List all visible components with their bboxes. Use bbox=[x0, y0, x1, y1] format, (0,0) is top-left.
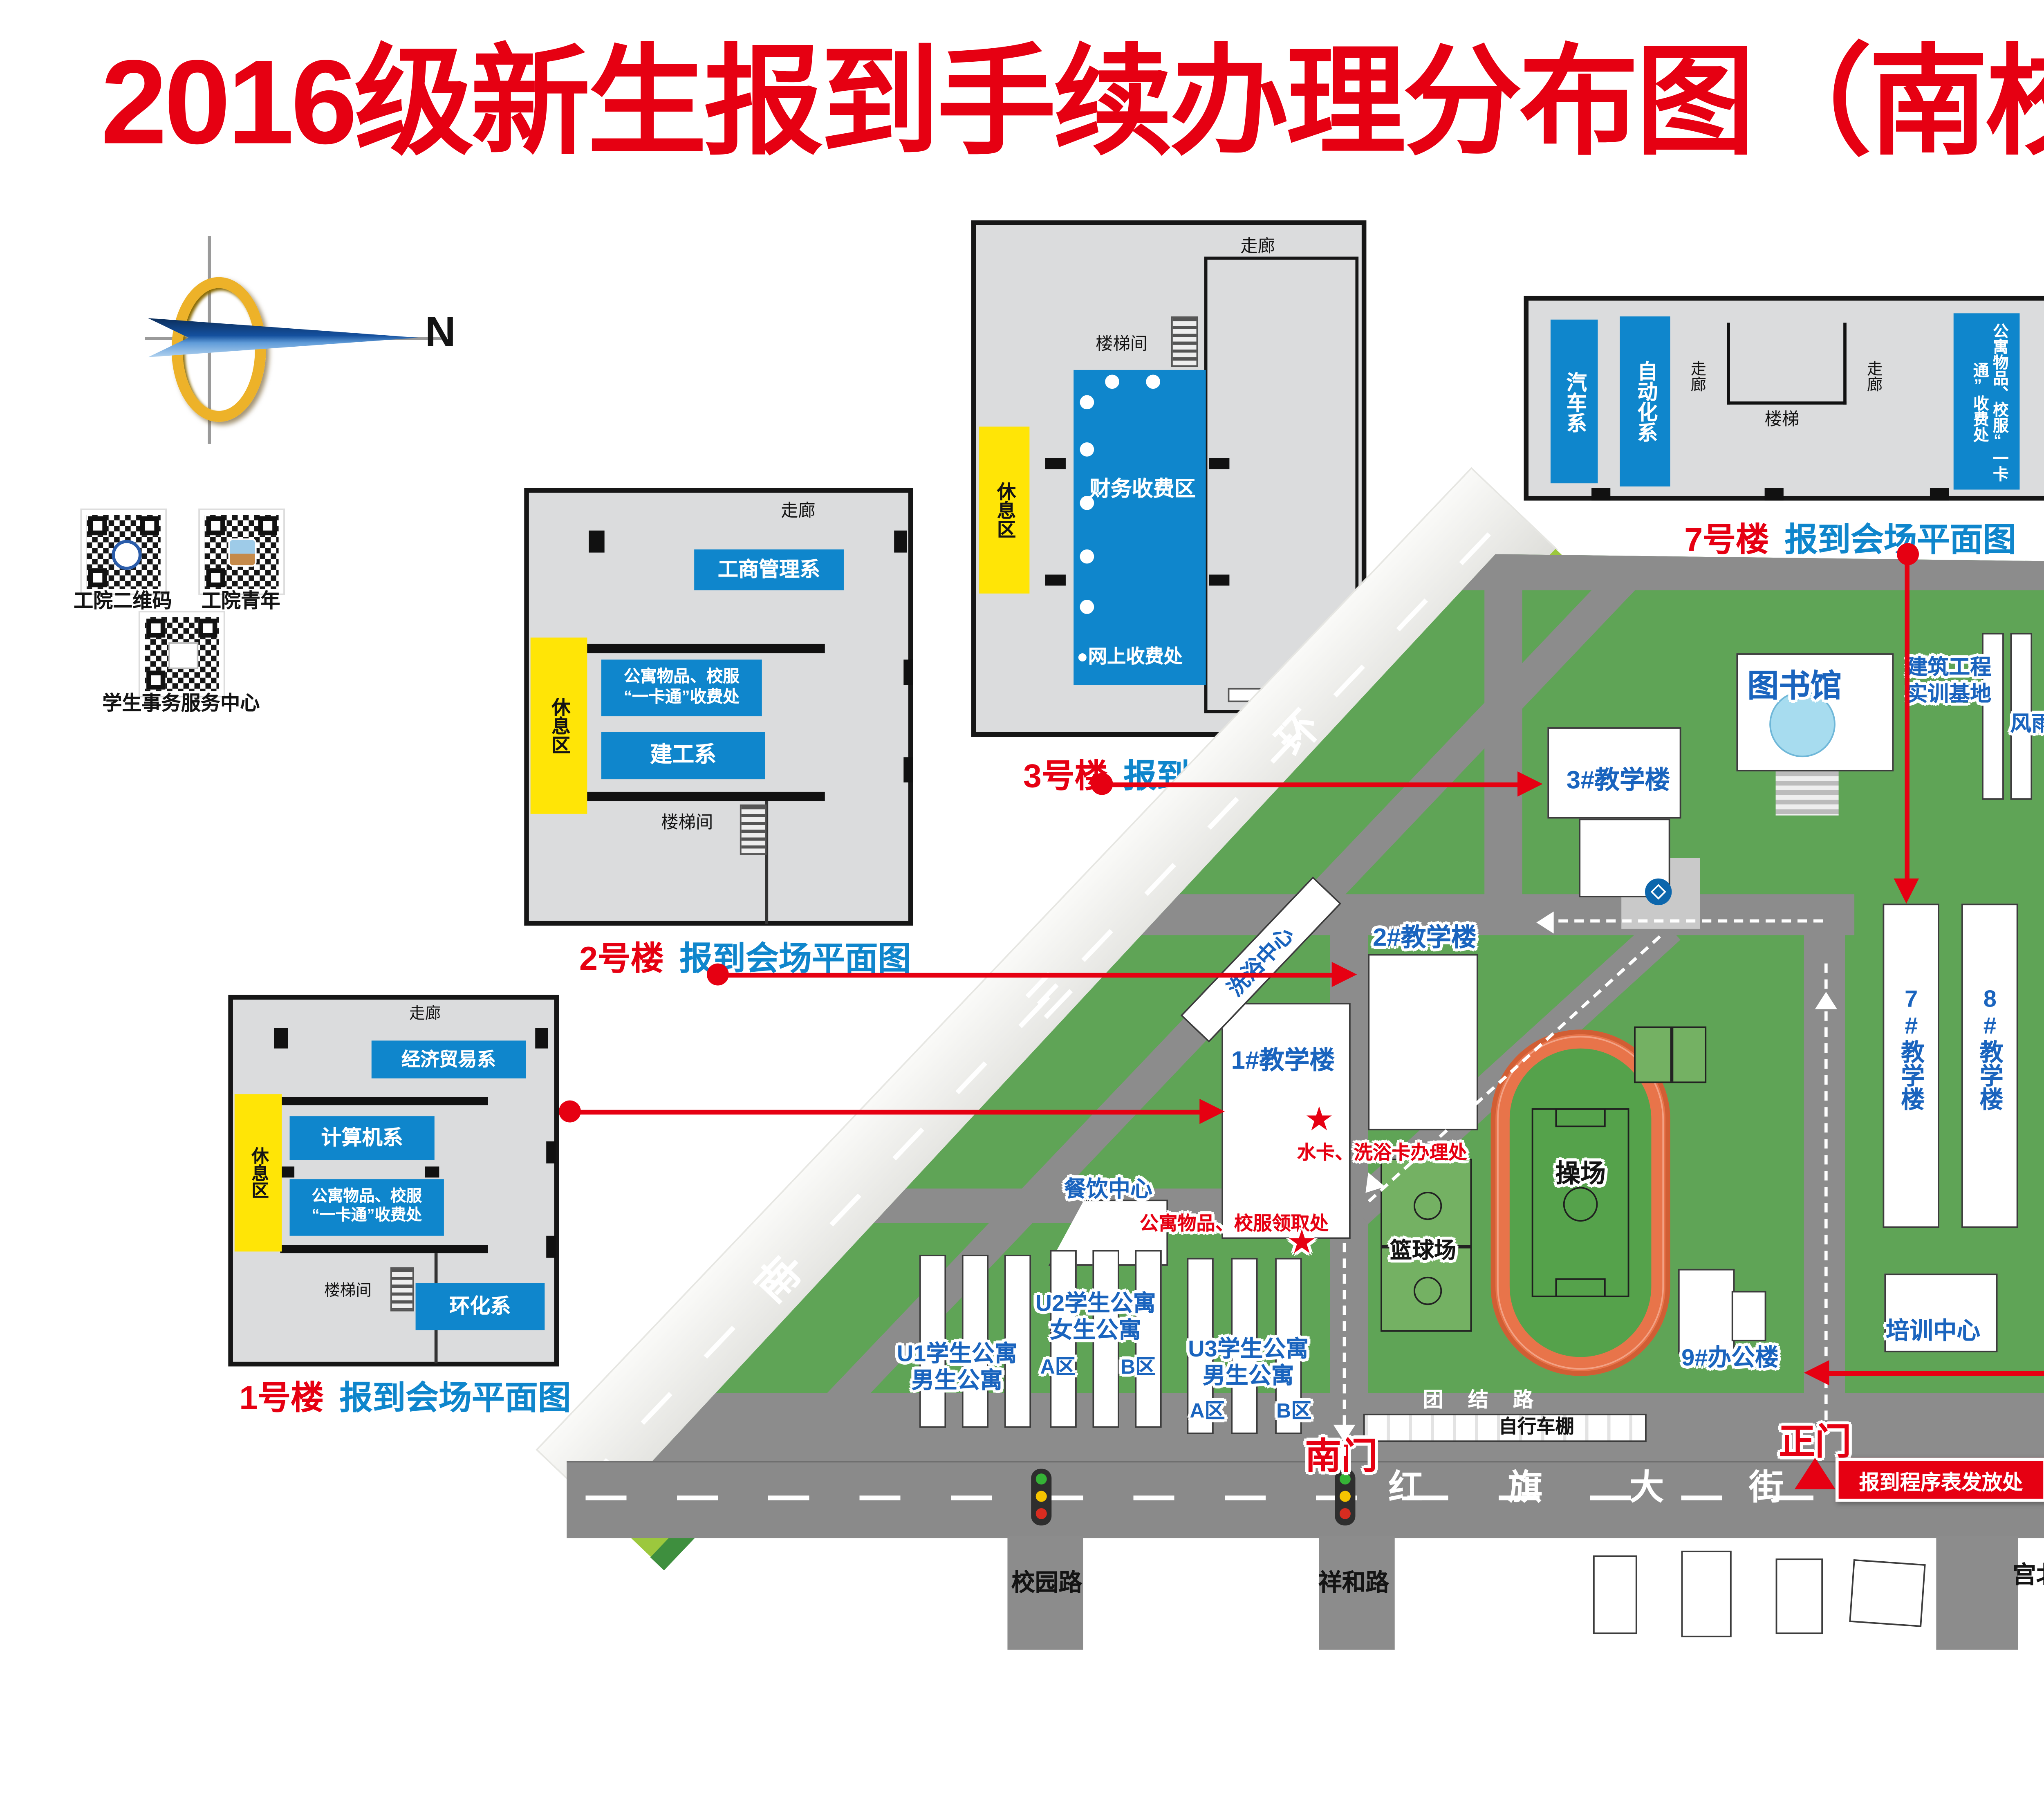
ccb-diamond-icon bbox=[1651, 884, 1666, 899]
ccb-bank-icon bbox=[1645, 879, 1672, 905]
dorm-slab-u1 bbox=[962, 1255, 988, 1428]
rest-area-label: 休息区 bbox=[993, 482, 1015, 538]
room-onecard-fee: 公寓物品、校服“一卡通”收费处 bbox=[1954, 313, 2020, 489]
door-tick bbox=[1045, 458, 1066, 469]
light-yellow bbox=[1036, 1491, 1047, 1502]
court-divider bbox=[1670, 1028, 1673, 1082]
door-tick bbox=[280, 1166, 294, 1177]
dorm-slab-u1 bbox=[1004, 1255, 1031, 1428]
label-u3-zone-b: B区 bbox=[1276, 1400, 1311, 1424]
room-label: 公寓物品、校服 bbox=[312, 1188, 422, 1207]
stairs-icon bbox=[1171, 316, 1198, 367]
street-char: 大 bbox=[1629, 1468, 1664, 1507]
corridor-label: 走廊 bbox=[1240, 238, 1275, 258]
room-label: 自动化系 bbox=[1632, 361, 1658, 442]
stairwell-label: 楼梯间 bbox=[1096, 335, 1148, 355]
library-road bbox=[1484, 587, 1522, 902]
label-main-gate: 正门 bbox=[1779, 1421, 1851, 1463]
door-tick bbox=[1209, 458, 1229, 469]
door-tick bbox=[589, 531, 605, 553]
wall bbox=[280, 1097, 488, 1105]
label-gym: 风雨操场 bbox=[2010, 712, 2044, 736]
door-tick bbox=[903, 659, 913, 685]
room-label: 建工系 bbox=[650, 742, 716, 769]
route-arrow-up-icon bbox=[1815, 992, 1837, 1009]
label-u3-line1: U3学生公寓 bbox=[1188, 1338, 1309, 1364]
label-teaching-3: 3#教学楼 bbox=[1567, 768, 1670, 797]
room-label: 工商管理系 bbox=[718, 557, 820, 583]
room-business-dept: 工商管理系 bbox=[694, 549, 844, 590]
rest-area-label: 休息区 bbox=[248, 1147, 268, 1199]
room-label: 环化系 bbox=[449, 1294, 511, 1320]
light-green bbox=[1036, 1473, 1047, 1484]
desk-dot bbox=[1105, 374, 1119, 389]
court-circle bbox=[1414, 1277, 1442, 1305]
stairwell-label: 楼梯间 bbox=[661, 814, 713, 834]
label-water-card: 水卡、洗浴卡办理处 bbox=[1297, 1143, 1467, 1165]
room-label: 财务收费区 bbox=[1089, 477, 1196, 502]
room-onecard-fee: 公寓物品、校服 “一卡通”收费处 bbox=[290, 1179, 444, 1236]
street-char: 街 bbox=[1749, 1468, 1784, 1507]
poster-canvas: 2016级新生报到手续办理分布图（南校区） N 工院二维码 工院青年 学生事务服… bbox=[0, 0, 2044, 1650]
qr-label-student-affairs: 学生事务服务中心 bbox=[102, 693, 260, 715]
label-training-base-1: 建筑工程 bbox=[1906, 655, 1991, 680]
label-u2-zone-a: A区 bbox=[1040, 1356, 1076, 1380]
teaching-building-2 bbox=[1368, 954, 1478, 1130]
line-dot-b1 bbox=[559, 1101, 581, 1123]
floorplan-building2: 走廊 工商管理系 公寓物品、校服 “一卡通”收费处 建工系 楼梯间 休息区 bbox=[524, 488, 913, 926]
handout-label: 报到程序表发放处 bbox=[1859, 1465, 2023, 1495]
door-tick bbox=[546, 1236, 556, 1258]
office-building-9 bbox=[1678, 1269, 1735, 1354]
line-dot-b3 bbox=[1091, 773, 1113, 795]
door-tick bbox=[546, 1141, 556, 1164]
compass: N bbox=[145, 236, 475, 444]
label-library: 图书馆 bbox=[1747, 670, 1842, 706]
route-arrow-left-icon bbox=[1536, 912, 1553, 934]
room-label: ●网上收费处 bbox=[1077, 647, 1183, 669]
door-tick bbox=[425, 1166, 439, 1177]
qr-position-marker-icon bbox=[88, 516, 107, 535]
corridor-label: 走廊 bbox=[781, 502, 816, 522]
line-dot-b7 bbox=[1897, 543, 1919, 565]
qr-label-youth: 工院青年 bbox=[202, 590, 280, 612]
desk-dot bbox=[1146, 374, 1160, 389]
qr-position-marker-icon bbox=[206, 516, 225, 535]
room-onecard-fee: 公寓物品、校服 “一卡通”收费处 bbox=[601, 659, 762, 716]
line-dot-b2 bbox=[707, 964, 729, 986]
traffic-light-icon bbox=[1031, 1469, 1051, 1526]
arrow-b2-icon bbox=[1332, 962, 1357, 987]
desk-dot bbox=[1080, 600, 1094, 614]
route-arrow-down-icon bbox=[1334, 1425, 1356, 1442]
label-training-center: 培训中心 bbox=[1886, 1318, 1980, 1345]
wall bbox=[280, 1245, 488, 1253]
room-computer-dept: 计算机系 bbox=[290, 1116, 435, 1160]
door-tick bbox=[1045, 575, 1066, 586]
room-label: 汽车系 bbox=[1561, 371, 1587, 432]
qr-position-marker-icon bbox=[206, 568, 225, 587]
label-training-base-2: 实训基地 bbox=[1906, 682, 1991, 706]
line-b1 bbox=[570, 1110, 1203, 1115]
room-automation-dept: 自动化系 bbox=[1620, 316, 1670, 487]
floorplan-building7: 汽车系 自动化系 走廊 楼梯 走廊 公寓物品、校服“一卡通”收费处 材料系 bbox=[1524, 296, 2044, 501]
label-teaching-2: 2#教学楼 bbox=[1373, 925, 1476, 954]
qr-code-college bbox=[87, 515, 161, 589]
label-u3-zone-a: A区 bbox=[1190, 1400, 1225, 1424]
rest-area: 休息区 bbox=[979, 427, 1029, 594]
rest-area: 休息区 bbox=[235, 1094, 282, 1251]
room-label: 计算机系 bbox=[321, 1125, 403, 1151]
label-office-9: 9#办公楼 bbox=[1681, 1345, 1779, 1372]
door-tick bbox=[1209, 575, 1229, 586]
small-court bbox=[1634, 1027, 1706, 1083]
label-playground: 操场 bbox=[1555, 1161, 1605, 1190]
desk-dot bbox=[1080, 395, 1094, 410]
page-title: 2016级新生报到手续办理分布图（南校区） bbox=[0, 35, 2044, 173]
door-tick bbox=[1930, 488, 1949, 501]
office-building-9-wing bbox=[1732, 1291, 1766, 1341]
label-teaching-8: 8#教学楼 bbox=[1976, 986, 2003, 1110]
label-basketball: 篮球场 bbox=[1390, 1237, 1456, 1262]
desk-dot bbox=[1080, 496, 1094, 510]
soccer-pitch bbox=[1532, 1108, 1629, 1297]
finance-fee-zone: 财务收费区 ●网上收费处 bbox=[1074, 370, 1206, 685]
stairs-icon bbox=[740, 805, 766, 855]
qr-position-marker-icon bbox=[140, 516, 159, 535]
label-tuanjie-road: 团 结 路 bbox=[1423, 1389, 1543, 1413]
line-b3 bbox=[1102, 782, 1520, 787]
label-u2-line2: 女生公寓 bbox=[1050, 1319, 1141, 1345]
qr-code-youth bbox=[205, 515, 279, 589]
light-red bbox=[1036, 1508, 1047, 1519]
room-auto-dept: 汽车系 bbox=[1551, 320, 1598, 483]
door-tick bbox=[894, 531, 907, 553]
label-dining-center: 餐饮中心 bbox=[1064, 1176, 1152, 1201]
stairs-icon bbox=[390, 1267, 414, 1312]
floorplan-building1: 走廊 经济贸易系 计算机系 公寓物品、校服 “一卡通”收费处 楼梯间 环化系 休… bbox=[228, 995, 559, 1367]
label-gongbei-road: 宫北路 bbox=[2013, 1562, 2044, 1589]
offsite-building-south bbox=[1849, 1559, 1925, 1627]
street-centerline bbox=[585, 1495, 2044, 1500]
line-b2 bbox=[718, 973, 1335, 978]
line-info-desk bbox=[1829, 1371, 2044, 1376]
room-label: “一卡通”收费处 bbox=[312, 1207, 422, 1227]
label-u1-line2: 男生公寓 bbox=[912, 1369, 1003, 1395]
room-label: 公寓物品、校服“一卡通”收费处 bbox=[1967, 320, 2006, 483]
light-yellow bbox=[1340, 1491, 1351, 1502]
stair-u-shape bbox=[1727, 323, 1847, 404]
library-stairs bbox=[1776, 771, 1839, 816]
door-tick bbox=[535, 1028, 548, 1049]
caption-building1: 1号楼报到会场平面图 bbox=[239, 1373, 571, 1420]
label-u1-line1: U1学生公寓 bbox=[897, 1342, 1018, 1368]
street-char: 红 bbox=[1388, 1468, 1423, 1507]
room-construction-dept: 建工系 bbox=[601, 732, 765, 780]
label-u2-line1: U2学生公寓 bbox=[1035, 1292, 1156, 1318]
line-b7 bbox=[1905, 554, 1910, 881]
qr-position-marker-icon bbox=[146, 619, 165, 637]
stairwell-label: 楼梯间 bbox=[324, 1283, 372, 1301]
gongbei-road bbox=[1936, 1536, 2018, 1650]
label-xianghe-road: 祥和路 bbox=[1318, 1570, 1389, 1597]
compass-north-arrow-icon bbox=[148, 316, 419, 359]
arrow-info-desk-icon bbox=[1804, 1360, 1829, 1386]
label-u2-zone-b: B区 bbox=[1121, 1356, 1156, 1380]
rest-area-label: 休息区 bbox=[548, 697, 569, 754]
arrow-b1-icon bbox=[1199, 1099, 1225, 1124]
goal-box bbox=[1555, 1278, 1605, 1297]
room-econ-trade-dept: 经济贸易系 bbox=[372, 1040, 526, 1078]
corridor-label: 走廊 bbox=[1862, 361, 1880, 392]
route-dashed-main bbox=[1824, 964, 1828, 1420]
room-label: 公寓物品、校服 bbox=[624, 667, 740, 688]
label-xiaoyuan-road: 校园路 bbox=[1011, 1570, 1082, 1597]
door-tick bbox=[274, 1028, 288, 1049]
wall bbox=[585, 644, 825, 653]
qr-position-marker-icon bbox=[198, 619, 217, 637]
desk-dot bbox=[1080, 549, 1094, 564]
handout-box: 报到程序表发放处 bbox=[1836, 1458, 2044, 1502]
door-tick bbox=[1591, 488, 1610, 501]
label-teaching-7: 7#教学楼 bbox=[1898, 986, 1925, 1110]
college-emblem-icon bbox=[112, 540, 141, 570]
traffic-light-icon bbox=[1335, 1469, 1355, 1526]
qr-position-marker-icon bbox=[146, 670, 165, 689]
route-dashed-south bbox=[1343, 1007, 1346, 1456]
mascot-logo-icon bbox=[228, 538, 256, 567]
caption-number: 2号楼 bbox=[579, 942, 664, 978]
route-dashed-top bbox=[1558, 919, 1823, 923]
compass-n-label: N bbox=[425, 309, 456, 358]
street-char: 旗 bbox=[1508, 1468, 1543, 1507]
desk-dot bbox=[1080, 442, 1094, 457]
room-envchem-dept: 环化系 bbox=[416, 1283, 545, 1330]
corridor-label: 走廊 bbox=[409, 1006, 441, 1024]
star-apartment-pickup-icon: ★ bbox=[1287, 1225, 1317, 1263]
qr-code-student-affairs bbox=[145, 617, 219, 691]
qr-position-marker-icon bbox=[258, 516, 277, 535]
label-teaching-1: 1#教学楼 bbox=[1231, 1048, 1335, 1077]
room-label: 经济贸易系 bbox=[401, 1048, 496, 1072]
court-circle bbox=[1414, 1192, 1442, 1220]
hbcit-logo-icon bbox=[168, 642, 198, 669]
stair-label: 楼梯 bbox=[1765, 411, 1800, 431]
arrow-b7-icon bbox=[1894, 879, 1919, 904]
offsite-building-south bbox=[1593, 1555, 1637, 1634]
light-red bbox=[1340, 1508, 1351, 1519]
center-circle bbox=[1563, 1187, 1598, 1222]
dorm-slab-u1 bbox=[919, 1255, 946, 1428]
qr-label-college: 工院二维码 bbox=[74, 590, 172, 612]
offsite-building-south bbox=[1776, 1558, 1823, 1634]
caption-number: 1号楼 bbox=[239, 1381, 324, 1417]
corridor-label: 走廊 bbox=[1686, 361, 1704, 392]
caption-number: 7号楼 bbox=[1684, 522, 1769, 559]
room-label: “一卡通”收费处 bbox=[624, 688, 740, 709]
main-gate-marker-icon bbox=[1795, 1458, 1836, 1489]
qr-position-marker-icon bbox=[88, 568, 107, 587]
offsite-building-south bbox=[1681, 1551, 1732, 1637]
label-u3-line2: 男生公寓 bbox=[1203, 1364, 1294, 1390]
arrow-b3-icon bbox=[1517, 771, 1543, 797]
caption-building7: 7号楼报到会场平面图 bbox=[1684, 515, 2016, 562]
caption-text: 报到会场平面图 bbox=[340, 1381, 571, 1417]
door-tick bbox=[1765, 488, 1784, 501]
goal-box bbox=[1555, 1108, 1605, 1127]
door-tick bbox=[903, 757, 913, 782]
rest-area: 休息区 bbox=[531, 638, 587, 814]
wall bbox=[585, 792, 825, 801]
star-water-card-icon: ★ bbox=[1304, 1102, 1334, 1140]
label-bikeshed: 自行车棚 bbox=[1499, 1417, 1574, 1439]
